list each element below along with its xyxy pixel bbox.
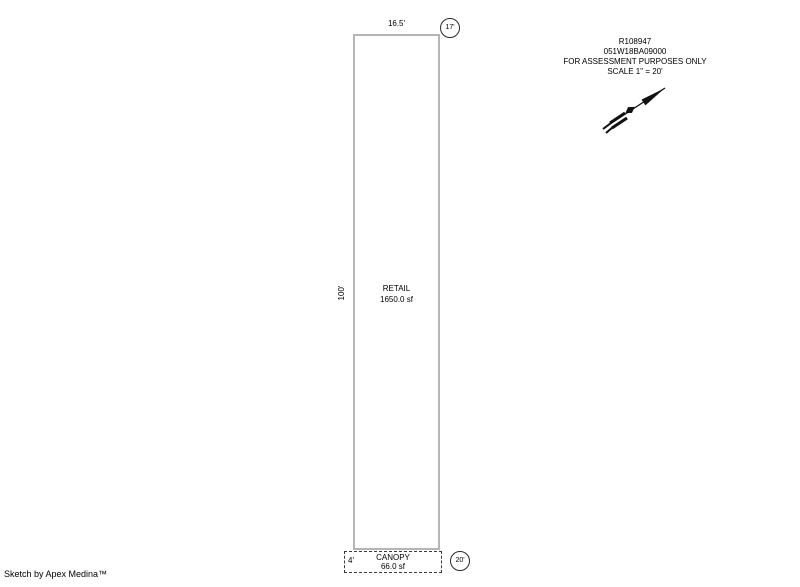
- retail-label-block: RETAIL 1650.0 sf: [353, 283, 440, 305]
- header-block: R108947 051W18BA09000 FOR ASSESSMENT PUR…: [500, 37, 770, 77]
- canopy-use-label: CANOPY: [344, 553, 442, 562]
- corner-tag-20: 20': [450, 551, 470, 571]
- assessment-sketch-sheet: R108947 051W18BA09000 FOR ASSESSMENT PUR…: [0, 0, 800, 587]
- disclaimer-text: FOR ASSESSMENT PURPOSES ONLY: [500, 57, 770, 67]
- canopy-label-block: CANOPY 66.0 sf: [344, 553, 442, 571]
- canopy-area-label: 66.0 sf: [344, 562, 442, 571]
- retail-use-label: RETAIL: [353, 283, 440, 294]
- parcel-id: 051W18BA09000: [500, 47, 770, 57]
- corner-tag-17: 17': [440, 18, 460, 38]
- record-id: R108947: [500, 37, 770, 47]
- retail-area-label: 1650.0 sf: [353, 294, 440, 305]
- retail-height-dimension: 100': [337, 279, 349, 307]
- north-arrow-icon: [597, 82, 672, 137]
- canopy-depth-dimension: 4': [348, 556, 354, 565]
- scale-text: SCALE 1" = 20': [500, 67, 770, 77]
- retail-width-dimension: 16.5': [353, 19, 440, 28]
- sketch-credit: Sketch by Apex Medina™: [4, 569, 107, 579]
